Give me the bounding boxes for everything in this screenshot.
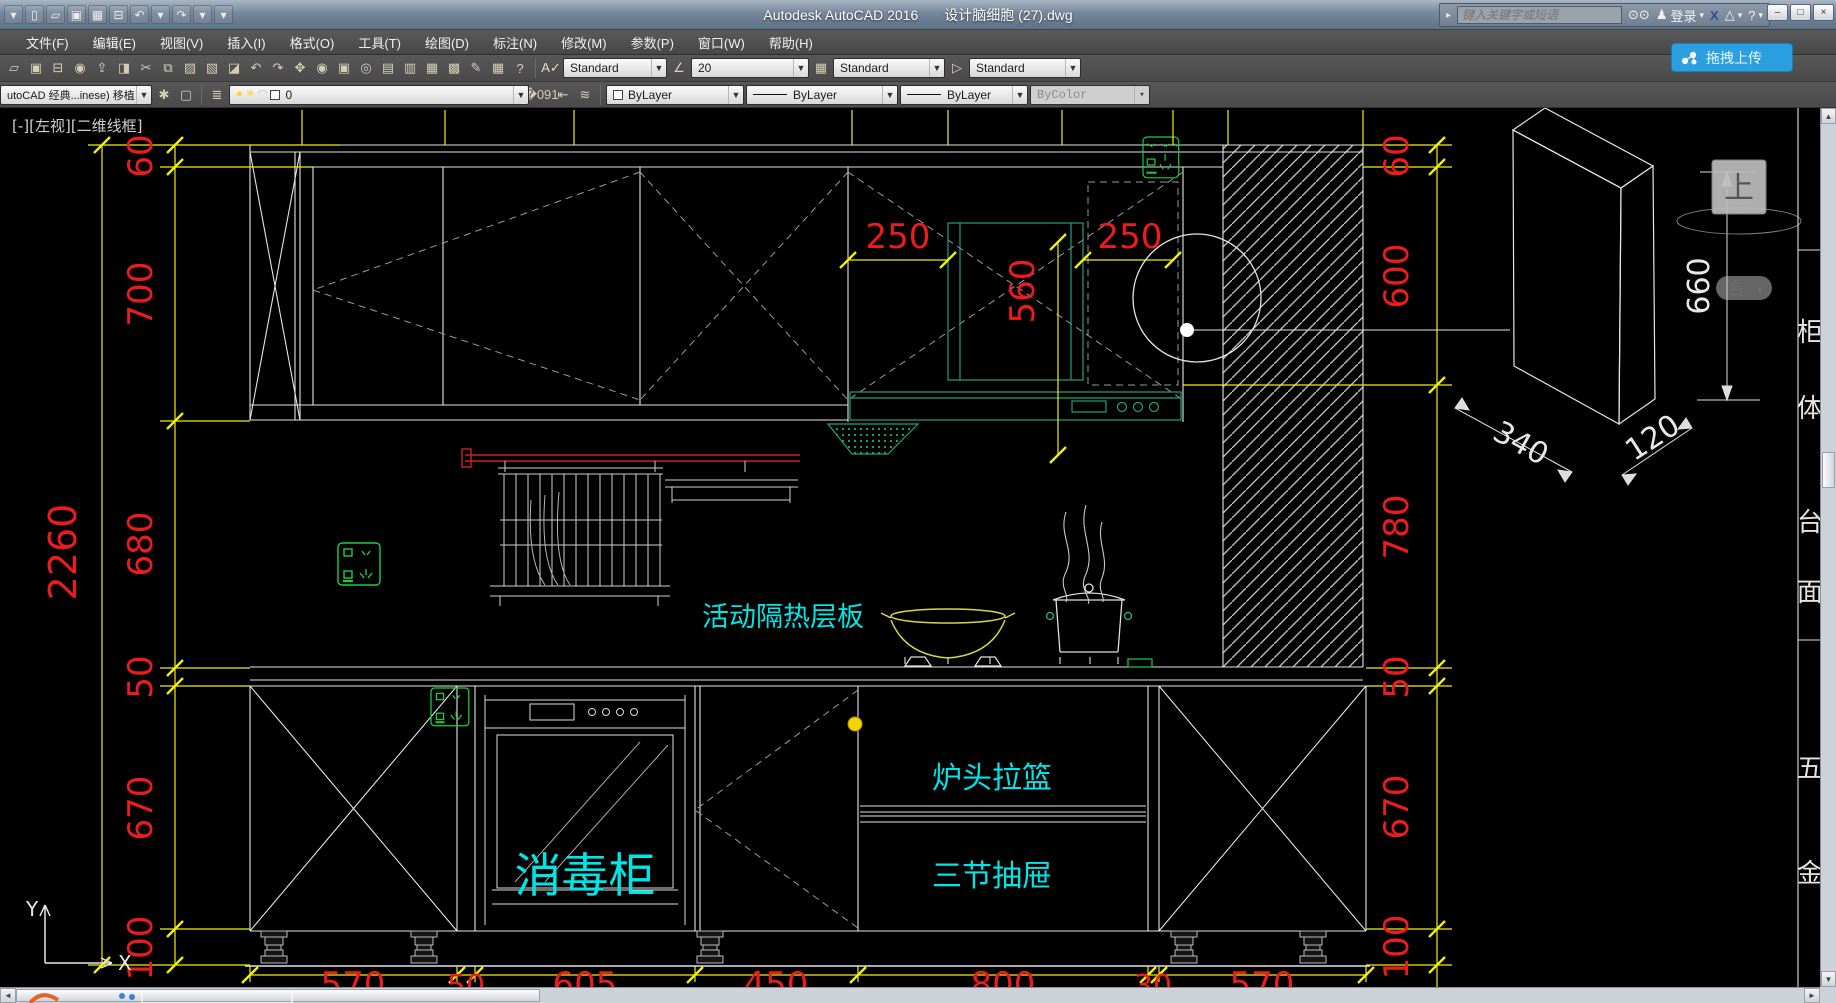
menu-draw[interactable]: 绘图(D) [413,30,481,55]
scroll-left-icon[interactable]: ◄ [0,988,16,1003]
menu-edit[interactable]: 编辑(E) [81,30,148,55]
design-center-icon[interactable]: ▥ [400,58,420,78]
qat-customize-icon[interactable]: ▾ [214,5,233,24]
title-bar: ▾▯▱▣▦⊟↶▾↷▾▾ Autodesk AutoCAD 2016 设计脑细胞 … [0,0,1836,30]
linetype-sample [753,94,787,95]
label-sterilizer: 消毒柜 [515,849,656,902]
svg-text:680: 680 [121,512,161,577]
chevron-down-icon: ▾ [1134,86,1149,104]
user-icon: ♟ [1656,7,1668,23]
autodesk360-icon[interactable]: △▾ [1725,7,1743,23]
svg-text:金: 金 [1797,858,1820,888]
svg-text:50: 50 [121,655,161,698]
chevron-down-icon: ▼ [929,59,944,77]
text-style-icon: A✓ [541,58,561,78]
svg-text:700: 700 [121,262,161,327]
layer-color-swatch[interactable] [270,90,280,100]
component-labels: 活动隔热层板 消毒柜 炉头拉篮 三节抽屉 [515,602,1053,902]
svg-text:60: 60 [1377,134,1417,177]
cooktop-items [881,505,1132,666]
sheet-set-manager-icon[interactable]: ▩ [444,58,464,78]
dimension-text: 60 700 680 50 670 100 2260 60 600 780 50… [41,134,1417,987]
app-menu-arrow-icon[interactable]: ▾ [4,5,23,24]
zoom-window-icon[interactable]: ▣ [334,58,354,78]
svg-text:570: 570 [1230,965,1295,987]
separator [600,85,601,105]
autocad-window: ▾▯▱▣▦⊟↶▾↷▾▾ Autodesk AutoCAD 2016 设计脑细胞 … [0,0,1836,1003]
sign-in-button[interactable]: ♟ 登录 ▾ [1656,6,1704,25]
svg-text:100: 100 [1377,915,1417,980]
block-editor-icon[interactable]: ◪ [224,58,244,78]
multileader-style-icon: ▷ [947,58,967,78]
menu-help[interactable]: 帮助(H) [757,30,825,55]
horizontal-scrollbar[interactable]: ◄ ► [0,987,1820,1003]
layer-manager-icons: ≣ [207,85,227,105]
chevron-down-icon: ▾ [1757,285,1762,296]
svg-text:台: 台 [1797,507,1820,537]
chevron-down-icon: ▼ [728,86,743,104]
dish-rack-assembly [462,449,800,606]
standard-toolbar: ▱▣⊟◉⇪◨✂⧉▨▧◪↶↷✥◉▣◎▤▥▦▩✎▦? A✓ Standard▼ ∠ … [0,55,1836,82]
plot-style-dropdown: ByColor▾ [1030,85,1150,105]
plot-icon[interactable]: ⊟ [48,58,68,78]
vertical-scroll-thumb[interactable] [1822,452,1835,488]
undo-icon[interactable]: ↶ [130,5,149,24]
table-style-dropdown[interactable]: Standard▼ [833,58,945,78]
svg-text:780: 780 [1377,495,1417,560]
menu-bar: 文件(F) 编辑(E) 视图(V) 插入(I) 格式(O) 工具(T) 绘图(D… [0,30,1836,55]
wall-section-hatch [1223,145,1363,667]
upload-cloud-icon [1680,50,1700,66]
scroll-up-icon[interactable]: ▲ [1821,108,1836,124]
svg-text:面: 面 [1797,577,1820,607]
menu-parametric[interactable]: 参数(P) [619,30,686,55]
workspace-icons: ✱▢ [154,85,196,105]
svg-text:五: 五 [1797,753,1820,783]
viewcube-wcs-label: 名 [1728,281,1743,298]
redo-dropdown-icon[interactable]: ▾ [193,5,212,24]
sign-in-label: 登录 [1670,6,1696,25]
restore-button[interactable]: □ [1790,4,1811,21]
svg-text:50: 50 [447,969,485,987]
open-file-icon[interactable]: ▱ [46,5,65,24]
horizontal-scroll-thumb[interactable] [16,989,540,1002]
search-input[interactable] [1457,6,1622,24]
menu-dimension[interactable]: 标注(N) [481,30,549,55]
utensil-shelf [665,480,798,503]
layer-states-icon[interactable]: ≋ [575,85,595,105]
ucs-icon [40,905,112,968]
panel-detail-3d [1513,108,1655,424]
chevron-down-icon: ▼ [1065,59,1080,77]
label-stove-basket: 炉头拉篮 [932,762,1052,795]
lineweight-dropdown[interactable]: ByLayer▼ [900,85,1028,105]
svg-text:560: 560 [1003,259,1043,324]
linetype-dropdown[interactable]: ByLayer▼ [746,85,898,105]
hood-filter-mesh [828,424,918,454]
save-icon[interactable]: ▣ [67,5,86,24]
markup-icon[interactable]: ✎ [466,58,486,78]
layer-thaw-sun-icon[interactable]: ✳ [246,89,255,100]
steam-lines [1063,505,1104,604]
plot-preview-icon[interactable]: ◉ [70,58,90,78]
text-style-dropdown[interactable]: Standard▼ [563,58,667,78]
separator [201,85,202,105]
viewcube-top-label: 上 [1724,172,1754,205]
exchange-apps-icon[interactable]: X [1710,8,1719,23]
range-hood [828,223,1181,454]
multileader-style-dropdown[interactable]: Standard▼ [969,58,1081,78]
dim-style-icon: ∠ [669,58,689,78]
minimize-button[interactable]: – [1767,4,1788,21]
help-icon[interactable]: ?▾ [1748,8,1763,23]
zoom-realtime-icon[interactable]: ◉ [312,58,332,78]
power-sockets [338,137,1179,726]
svg-text:340: 340 [1487,415,1554,473]
3d-dwf-icon[interactable]: ◨ [114,58,134,78]
tool-palettes-icon[interactable]: ▦ [422,58,442,78]
spec-table-edge: 柜 体 台 面 五 金 [1797,108,1820,987]
layer-dropdown[interactable]: ● ✳ ◠ 0 ▼ [229,85,529,105]
layer-tool-icons: �091⇤≋ [531,85,595,105]
model-space[interactable]: [-][左视][二维线框] [0,108,1820,987]
svg-text:柜: 柜 [1797,317,1820,347]
chevron-down-icon: ▼ [136,86,151,104]
svg-text:800: 800 [971,965,1036,987]
workspace-dropdown[interactable]: utoCAD 经典...inese) 移植 ▼ [0,85,152,105]
layer-name: 0 [285,88,292,102]
svg-text:605: 605 [553,965,618,987]
svg-text:670: 670 [121,776,161,841]
window-controls: – □ × [1767,4,1834,21]
save-as-icon[interactable]: ▦ [88,5,107,24]
chevron-down-icon: ▼ [793,59,808,77]
svg-text:Y: Y [25,897,39,921]
zoom-previous-icon[interactable]: ◎ [356,58,376,78]
svg-text:50: 50 [1377,655,1417,698]
menu-modify[interactable]: 修改(M) [549,30,619,55]
chevron-down-icon: ▼ [651,59,666,77]
workspace-settings-gear-icon[interactable]: ✱ [154,85,174,105]
color-dropdown[interactable]: ByLayer▼ [606,85,744,105]
viewport-controls[interactable]: [-][左视][二维线框] [12,117,143,135]
svg-text:570: 570 [321,965,386,987]
paste-icon[interactable]: ▨ [180,58,200,78]
drag-upload-label: 拖拽上传 [1706,48,1762,68]
label-insulation-shelf: 活动隔热层板 [702,602,864,632]
viewcube-wcs-menu[interactable] [1716,276,1772,300]
make-object-layer-current-icon[interactable]: �091 [531,85,551,105]
plot-icon[interactable]: ⊟ [109,5,128,24]
redo-icon[interactable]: ↷ [172,5,191,24]
new-file-icon[interactable]: ▯ [25,5,44,24]
layer-unlock-icon[interactable]: ◠ [258,89,268,100]
cut-icon[interactable]: ✂ [136,58,156,78]
socket-icon [338,543,380,585]
svg-text:体: 体 [1797,393,1820,423]
document-name: 设计脑细胞 (27).dwg [944,5,1072,25]
scroll-down-icon[interactable]: ▼ [1821,971,1836,987]
cabinet-elevation-lines [245,145,1370,966]
pan-icon[interactable]: ✥ [290,58,310,78]
quick-access-toolbar: ▾▯▱▣▦⊟↶▾↷▾▾ [0,5,233,24]
label-three-drawer: 三节抽屉 [932,860,1052,893]
adjustable-feet [261,931,1326,963]
sign-in-caret-icon: ▾ [1700,10,1705,21]
menu-insert[interactable]: 插入(I) [215,30,277,55]
layer-previous-icon[interactable]: ⇤ [553,85,573,105]
app-title: Autodesk AutoCAD 2016 [763,7,918,23]
svg-text:600: 600 [1377,244,1417,309]
copy-icon[interactable]: ⧉ [158,58,178,78]
infocenter: ▸ ⊙⊙ ♟ 登录 ▾ X △▾ ?▾ [1439,3,1770,27]
publish-icon[interactable]: ⇪ [92,58,112,78]
dim-style-dropdown[interactable]: 20▼ [691,58,809,78]
menu-window[interactable]: 窗口(W) [686,30,757,55]
standard-toolbar-icons: ▱▣⊟◉⇪◨✂⧉▨▧◪↶↷✥◉▣◎▤▥▦▩✎▦? [4,58,530,78]
help-icon[interactable]: ? [510,58,530,78]
quick-calc-icon[interactable]: ▦ [488,58,508,78]
svg-text:250: 250 [866,217,931,257]
pot [1047,584,1132,652]
menu-file[interactable]: 文件(F) [14,30,81,55]
undo-dropdown-icon[interactable]: ▾ [151,5,170,24]
layer-on-bulb-icon[interactable]: ● [236,89,243,100]
panel-detail-dim-text: 340 120 660 [1487,257,1717,473]
color-swatch [613,90,623,100]
open-file-icon[interactable]: ▱ [4,58,24,78]
redo-icon[interactable]: ↷ [268,58,288,78]
layer-properties-manager-icon[interactable]: ≣ [207,85,227,105]
infocenter-expand-icon[interactable]: ▸ [1446,10,1451,21]
svg-text:670: 670 [1377,775,1417,840]
svg-text:660: 660 [1682,257,1717,314]
separator [535,58,536,78]
layers-properties-toolbar: utoCAD 经典...inese) 移植 ▼ ✱▢ ≣ ● ✳ ◠ 0 ▼ �… [0,82,1836,108]
svg-text:60: 60 [121,134,161,177]
chevron-down-icon: ▼ [1012,86,1027,104]
svg-text:30: 30 [1134,969,1172,987]
vertical-scrollbar[interactable]: ▲ ▼ [1820,108,1836,987]
chevron-down-icon: ▼ [882,86,897,104]
menu-format[interactable]: 格式(O) [278,30,347,55]
chevron-down-icon: ▼ [513,86,528,104]
lineweight-sample [907,94,941,95]
svg-text:450: 450 [744,965,809,987]
properties-palette-icon[interactable]: ▤ [378,58,398,78]
undo-icon[interactable]: ↶ [246,58,266,78]
wok [881,609,1015,658]
search-binoculars-icon[interactable]: ⊙⊙ [1628,7,1650,23]
scrollbar-corner [1820,987,1836,1003]
ui-lock-icon[interactable]: ▢ [176,85,196,105]
burner-stands [905,657,1001,666]
match-properties-icon[interactable]: ▧ [202,58,222,78]
scroll-right-icon[interactable]: ► [1804,988,1820,1003]
drag-upload-badge[interactable]: 拖拽上传 [1672,44,1792,71]
counter-fitting [1128,659,1152,667]
red-rail [465,455,800,461]
menu-tools[interactable]: 工具(T) [346,30,413,55]
svg-text:X: X [118,951,132,975]
menu-view[interactable]: 视图(V) [148,30,215,55]
close-button[interactable]: × [1813,4,1834,21]
drawing-canvas[interactable]: [-][左视][二维线框] [0,108,1836,1003]
save-icon[interactable]: ▣ [26,58,46,78]
hot-grip-point[interactable] [848,717,862,731]
svg-text:2260: 2260 [41,504,85,601]
table-style-icon: ▦ [811,58,831,78]
